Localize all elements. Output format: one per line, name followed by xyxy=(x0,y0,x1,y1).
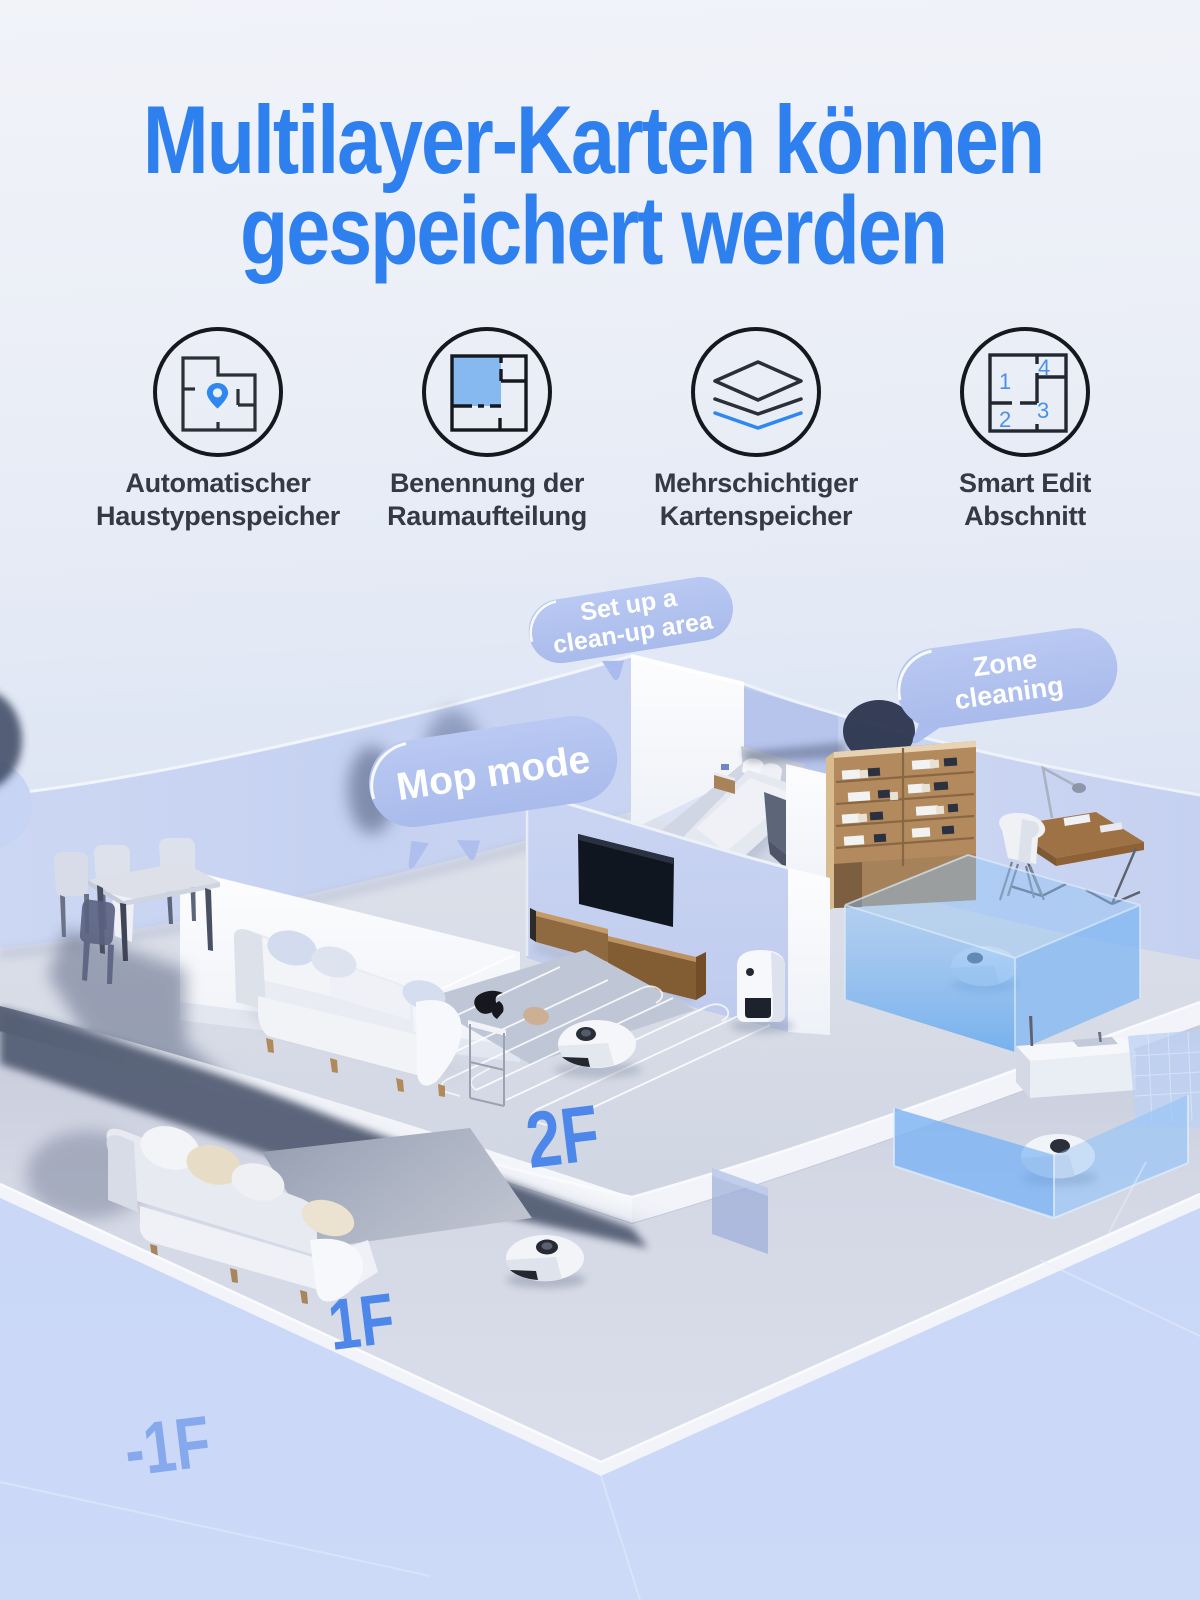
svg-text:1F: 1F xyxy=(324,1278,399,1366)
svg-text:-1F: -1F xyxy=(120,1400,215,1491)
svg-text:2F: 2F xyxy=(521,1089,604,1185)
